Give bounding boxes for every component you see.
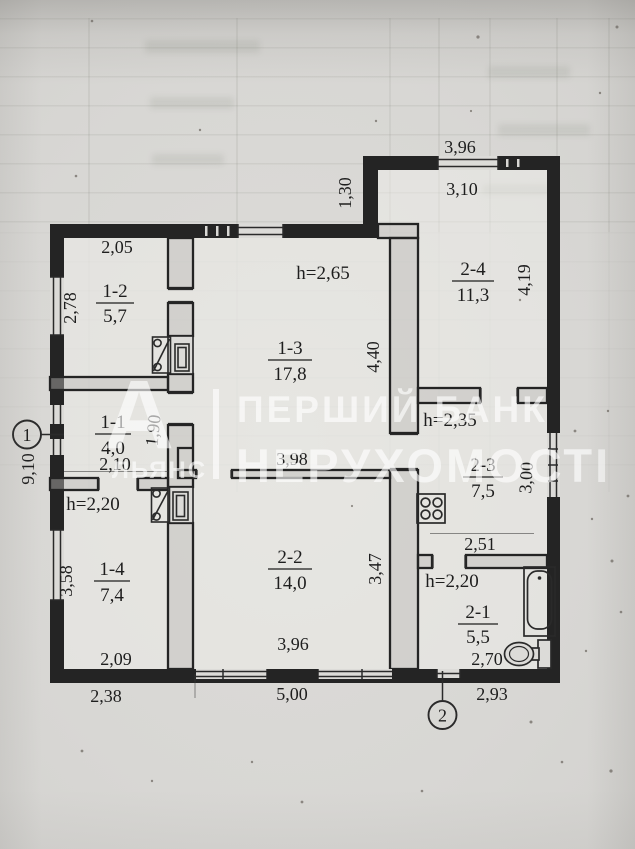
dim-r22-right: 3,47 xyxy=(365,553,385,585)
room-1-4-height: h=2,20 xyxy=(66,494,119,515)
dim-annex-top-outer: 3,96 xyxy=(444,137,476,157)
dim-r11-right: 1,90 xyxy=(141,414,164,447)
dim-bottom-left-outer: 2,38 xyxy=(90,686,122,706)
dim-r14-bottom: 2,09 xyxy=(100,649,132,669)
axis-marker-1-label: 1 xyxy=(23,425,32,445)
room-1-4-id: 1-4 xyxy=(99,559,125,580)
dim-r12-left: 2,78 xyxy=(60,292,80,324)
room-2-2-id: 2-2 xyxy=(277,547,302,568)
dim-left-outer: 9,10 xyxy=(18,453,38,485)
room-2-2-area: 14,0 xyxy=(273,573,306,594)
room-2-1-area: 5,5 xyxy=(466,627,490,648)
dim-r23-right: 3,00 xyxy=(515,461,537,494)
room-1-1-id: 1-1 xyxy=(100,412,125,433)
room-1-3-id: 1-3 xyxy=(277,338,302,359)
dim-r23-bottom: 2,51 xyxy=(464,534,496,554)
room-2-1-height: h=2,20 xyxy=(425,571,478,592)
dim-r14-left: 3,58 xyxy=(56,565,76,597)
dim-annex-right: 4,19 xyxy=(514,264,534,296)
dim-bottom-right-outer: 2,93 xyxy=(476,684,508,704)
axis-marker-2-label: 2 xyxy=(438,706,447,726)
dim-r13-right: 4,40 xyxy=(363,341,383,373)
room-2-4-id: 2-4 xyxy=(460,259,486,280)
room-2-1-id: 2-1 xyxy=(465,602,490,623)
room-1-2-id: 1-2 xyxy=(102,281,127,302)
room-1-3-area: 17,8 xyxy=(273,364,306,385)
dim-r12-top: 2,05 xyxy=(101,237,133,257)
scanned-floor-plan-page: { "document": { "kind": "BTI floor plan … xyxy=(0,0,635,849)
dim-annex-left: 1,30 xyxy=(335,177,355,209)
dim-r13-bottom: 3,98 xyxy=(276,449,308,469)
room-1-4-area: 7,4 xyxy=(100,585,124,606)
room-1-3-height: h=2,65 xyxy=(296,263,349,284)
room-2-3-id: 2-3 xyxy=(470,455,495,476)
room-2-3-area: 7,5 xyxy=(471,481,495,502)
dim-r11-bottom: 2,10 xyxy=(99,454,131,474)
floor-plan-svg: 1-2 5,7 h=2,65 1-3 17,8 1-1 4,0 h=2,20 1… xyxy=(0,0,635,849)
toilet xyxy=(505,640,552,668)
room-2-4-area: 11,3 xyxy=(457,285,490,306)
room-2-3-height: h=2,35 xyxy=(423,410,476,431)
dim-r22-bottom: 3,96 xyxy=(277,634,309,654)
room-1-2-area: 5,7 xyxy=(103,306,127,327)
dim-r21-bottom: 2,70 xyxy=(471,649,503,669)
dim-bottom-mid-outer: 5,00 xyxy=(276,684,308,704)
dim-annex-top-inner: 3,10 xyxy=(446,179,478,199)
